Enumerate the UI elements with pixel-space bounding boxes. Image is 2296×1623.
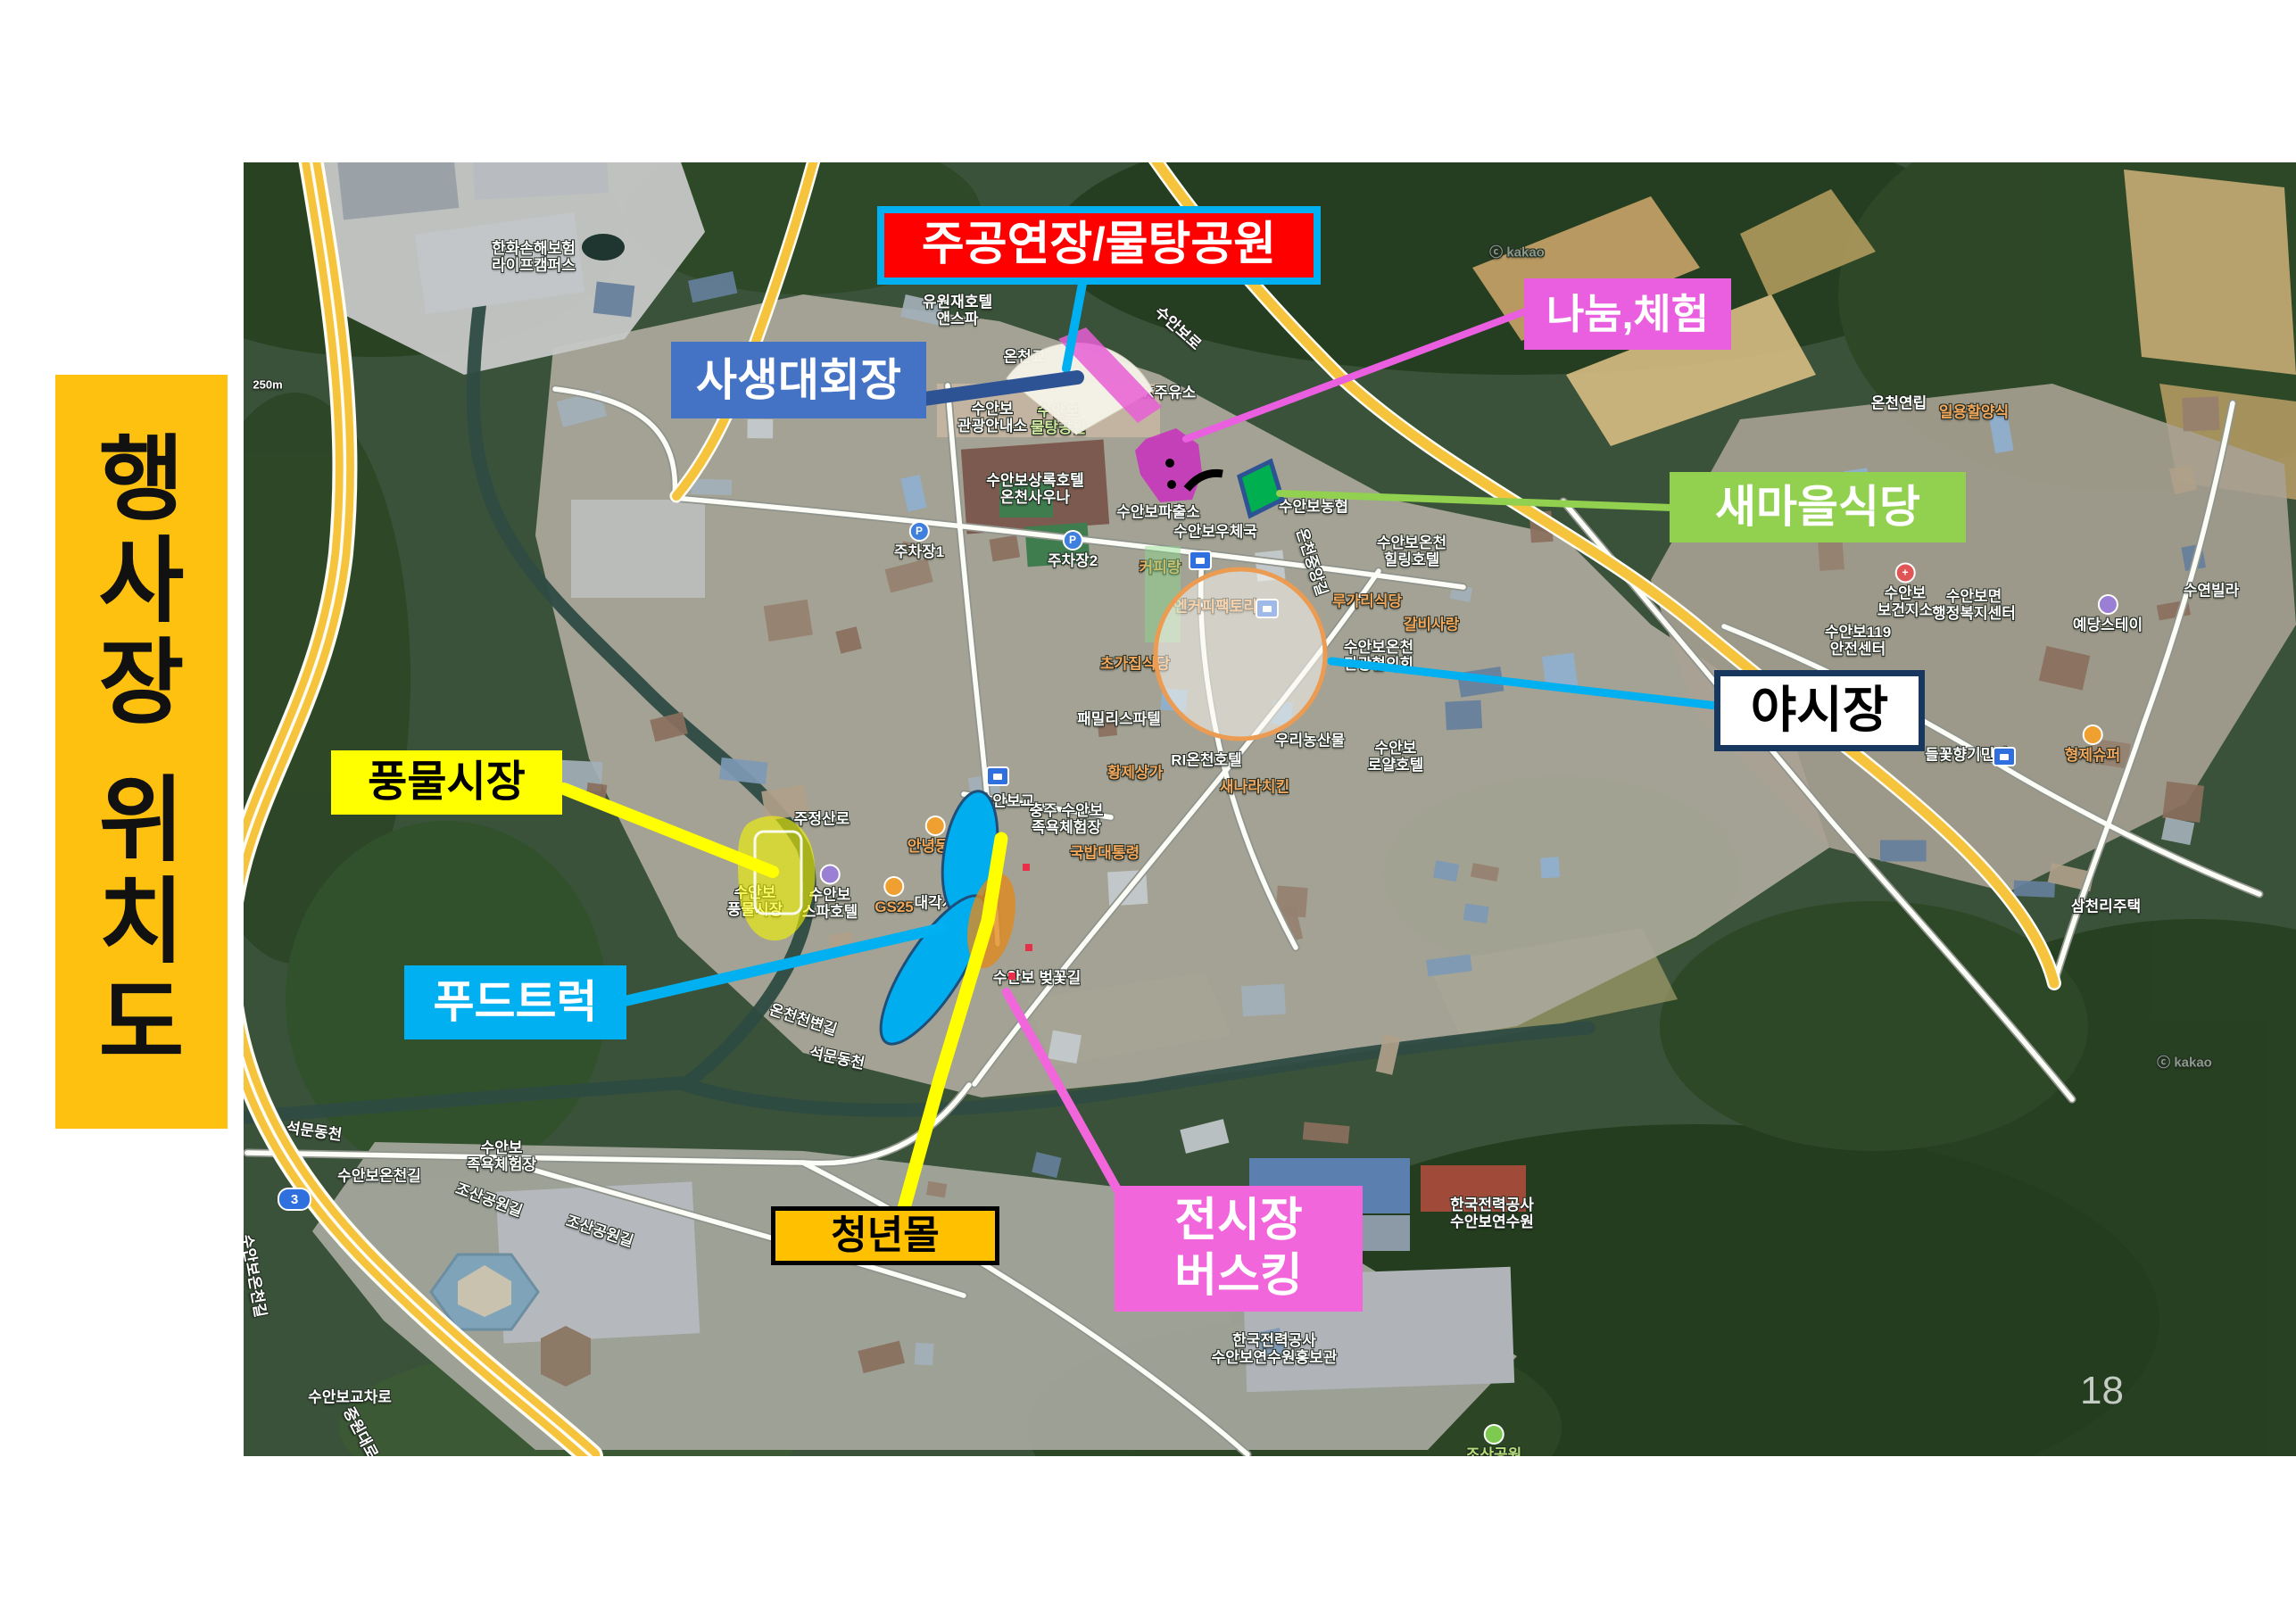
callout-drawing-contest: 사생대회장 bbox=[671, 342, 926, 418]
satellite-map: 250m한화손해보험라이프캠퍼스유원재호텔앤스파온천교수안보로SK주유소수안보관… bbox=[244, 162, 2296, 1456]
title-char: 도 bbox=[99, 973, 185, 1075]
callout-exhibition-busking: 전시장 버스킹 bbox=[1115, 1186, 1363, 1312]
callout-pungmul-market: 풍물시장 bbox=[331, 750, 562, 815]
slide-page: 행사장위치도 bbox=[0, 0, 2296, 1623]
callout-youth-mall: 청년몰 bbox=[771, 1206, 999, 1265]
callout-saemaul-restaurant: 새마을식당 bbox=[1670, 472, 1966, 542]
title-char: 치 bbox=[99, 872, 185, 973]
title-char: 위 bbox=[99, 770, 185, 872]
callout-layer: 주공연장/물탕공원나눔,체험사생대회장새마을식당야시장풍물시장푸드트럭청년몰전시… bbox=[244, 162, 2296, 1456]
event-map-title-banner: 행사장위치도 bbox=[55, 375, 228, 1129]
title-char: 사 bbox=[99, 531, 185, 633]
title-char: 장 bbox=[99, 633, 185, 734]
callout-sharing-experience: 나눔,체험 bbox=[1524, 278, 1731, 350]
title-char: 행 bbox=[99, 429, 185, 531]
callout-food-truck: 푸드트럭 bbox=[404, 965, 626, 1039]
page-number: 18 bbox=[2080, 1369, 2124, 1413]
callout-night-market: 야시장 bbox=[1714, 670, 1925, 751]
callout-main-stage: 주공연장/물탕공원 bbox=[877, 206, 1321, 285]
